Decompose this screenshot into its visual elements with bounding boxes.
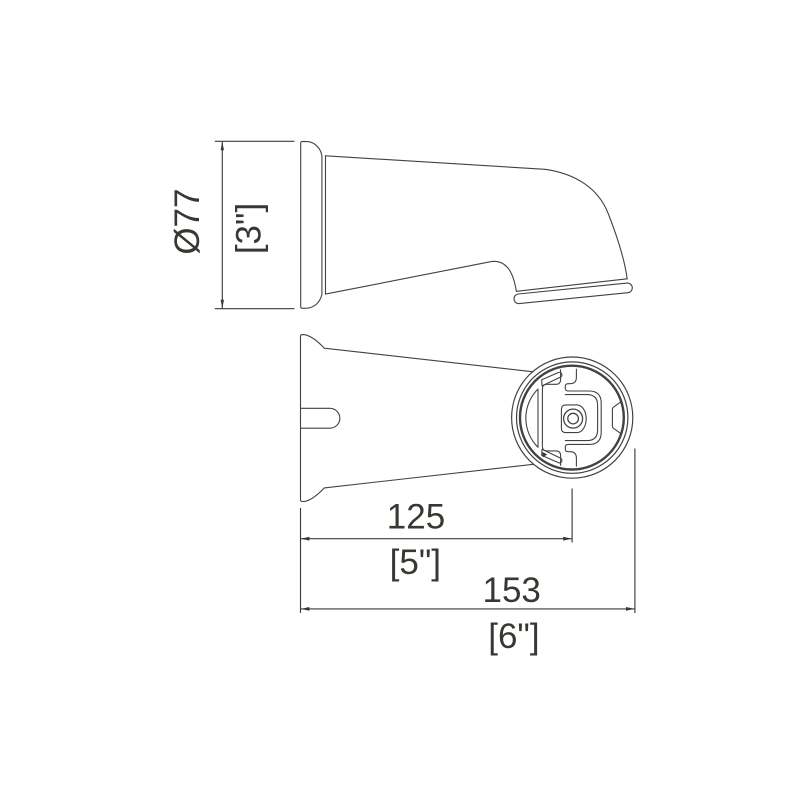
svg-text:[5"]: [5"] xyxy=(390,543,441,582)
svg-text:Ø77: Ø77 xyxy=(168,189,207,255)
svg-text:153: 153 xyxy=(482,571,540,610)
svg-text:[3"]: [3"] xyxy=(230,203,269,254)
svg-text:125: 125 xyxy=(387,498,445,537)
svg-text:[6"]: [6"] xyxy=(488,617,539,656)
